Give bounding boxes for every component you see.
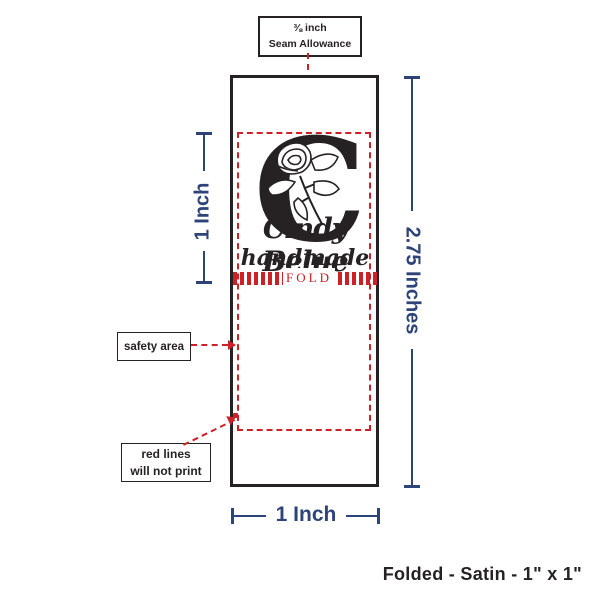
measure-bottom-label: 1 Inch bbox=[266, 498, 346, 532]
measure-left-label: 1 Inch bbox=[187, 171, 219, 251]
measure-right-label: 2.75 Inches bbox=[396, 211, 428, 349]
measure-right-cap-bottom bbox=[404, 485, 420, 488]
red-lines-corner-dot bbox=[233, 413, 238, 418]
measure-left-cap-bottom bbox=[196, 281, 212, 284]
footer-note: Folded - Satin - 1" x 1" bbox=[320, 564, 582, 585]
measure-left-cap-top bbox=[196, 132, 212, 135]
label-spec-diagram: ⅜ inch Seam Allowance C Cindy Belue hand… bbox=[0, 0, 600, 600]
red-lines-arrow bbox=[183, 419, 235, 446]
measure-bottom-cap-right bbox=[377, 508, 380, 524]
safety-area-arrow bbox=[191, 344, 228, 346]
seam-allowance-line1: ⅜ inch bbox=[293, 21, 326, 36]
seam-allowance-line2: Seam Allowance bbox=[269, 37, 351, 52]
measure-right-cap-top bbox=[404, 76, 420, 79]
fold-label: FOLD bbox=[283, 268, 335, 288]
red-lines-callout: red lines will not print bbox=[121, 443, 211, 482]
safety-area-arrow-tip bbox=[228, 340, 236, 350]
flower-bloom bbox=[277, 143, 311, 174]
safety-area-callout: safety area bbox=[117, 332, 191, 361]
measure-bottom-cap-left bbox=[231, 508, 234, 524]
seam-allowance-callout: ⅜ inch Seam Allowance bbox=[258, 16, 362, 57]
